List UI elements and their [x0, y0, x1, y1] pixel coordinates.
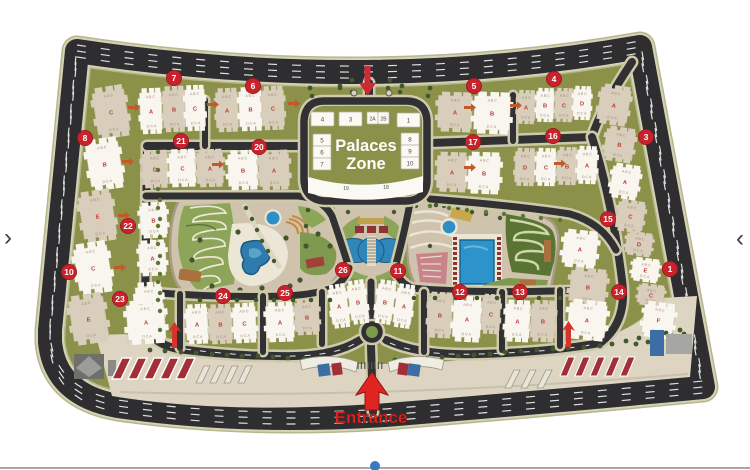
svg-text:22: 22 [123, 221, 133, 231]
svg-text:B: B [248, 107, 252, 113]
svg-text:D C A: D C A [540, 113, 550, 117]
svg-text:A B C: A B C [513, 306, 523, 310]
svg-text:B: B [490, 111, 494, 117]
svg-text:D C A: D C A [246, 121, 256, 125]
svg-text:A B C: A B C [177, 155, 187, 159]
svg-text:A B C: A B C [169, 93, 179, 97]
svg-text:D C A: D C A [149, 229, 159, 234]
svg-text:A B C: A B C [488, 99, 498, 103]
svg-text:D C A: D C A [223, 122, 233, 126]
svg-text:1: 1 [407, 118, 411, 125]
svg-text:B: B [241, 168, 245, 174]
svg-text:14: 14 [614, 287, 624, 297]
svg-text:A B C: A B C [451, 98, 461, 102]
svg-text:B: B [482, 171, 486, 177]
svg-text:A B C: A B C [302, 305, 312, 309]
svg-text:D C A: D C A [447, 183, 457, 187]
svg-text:D C A: D C A [479, 185, 489, 189]
svg-text:D C A: D C A [276, 333, 286, 337]
svg-text:A B C: A B C [238, 156, 248, 160]
svg-text:8: 8 [408, 137, 412, 144]
svg-text:A B C: A B C [192, 310, 202, 314]
svg-text:15: 15 [603, 214, 613, 224]
svg-text:4: 4 [321, 117, 325, 124]
svg-text:A B C: A B C [140, 307, 150, 312]
svg-text:A B C: A B C [542, 154, 552, 158]
svg-text:1: 1 [668, 264, 673, 274]
svg-text:A B C: A B C [487, 300, 497, 304]
svg-text:D C A: D C A [461, 332, 471, 337]
svg-text:A B C: A B C [150, 156, 160, 160]
svg-text:D C A: D C A [521, 115, 531, 119]
svg-text:D C A: D C A [520, 177, 530, 181]
svg-text:D C A: D C A [434, 328, 444, 333]
svg-text:13: 13 [515, 287, 525, 297]
svg-text:D C A: D C A [487, 125, 497, 129]
svg-text:Entrance: Entrance [335, 408, 408, 427]
svg-text:8: 8 [83, 133, 88, 143]
svg-text:D C A: D C A [450, 123, 460, 127]
svg-text:D C A: D C A [193, 335, 203, 340]
svg-text:A B C: A B C [563, 153, 573, 157]
svg-text:D: D [580, 101, 584, 107]
svg-text:12: 12 [455, 287, 465, 297]
svg-text:16: 16 [548, 131, 558, 141]
svg-text:D C A: D C A [206, 178, 216, 182]
svg-text:D C A: D C A [142, 334, 152, 339]
svg-text:A B C: A B C [215, 310, 225, 314]
svg-text:A B C: A B C [578, 92, 588, 96]
svg-text:D C A: D C A [541, 177, 551, 181]
svg-text:3: 3 [349, 117, 353, 124]
svg-text:D C A: D C A [240, 334, 250, 339]
svg-text:A B C: A B C [521, 154, 531, 158]
svg-text:B: B [541, 319, 545, 325]
svg-text:A B C: A B C [448, 158, 458, 162]
svg-text:D C A: D C A [151, 179, 161, 183]
svg-text:10: 10 [407, 161, 414, 168]
svg-text:B: B [356, 300, 361, 307]
svg-text:6: 6 [320, 150, 324, 157]
svg-text:18: 18 [383, 185, 389, 191]
svg-text:D C A: D C A [147, 124, 157, 128]
svg-text:D C A: D C A [512, 333, 522, 338]
svg-text:B: B [172, 107, 176, 113]
svg-text:D C A: D C A [559, 113, 569, 117]
svg-text:A B C: A B C [436, 299, 446, 303]
svg-text:D C A: D C A [303, 326, 313, 330]
svg-text:B: B [543, 103, 547, 109]
svg-text:A B C: A B C [541, 94, 551, 98]
svg-text:A B C: A B C [239, 309, 249, 313]
svg-text:A B C: A B C [245, 94, 255, 98]
svg-text:B: B [438, 313, 442, 319]
svg-text:D C A: D C A [269, 120, 279, 124]
svg-text:B: B [382, 300, 387, 307]
svg-text:11: 11 [394, 266, 403, 276]
svg-text:7: 7 [320, 162, 324, 169]
svg-text:A B C: A B C [190, 92, 200, 96]
svg-text:›: › [4, 224, 12, 251]
svg-text:D C A: D C A [216, 335, 226, 340]
svg-text:D C A: D C A [170, 122, 180, 126]
svg-text:D C A: D C A [239, 181, 249, 185]
svg-text:D: D [523, 165, 527, 171]
svg-text:7: 7 [172, 73, 177, 83]
svg-text:10: 10 [64, 267, 74, 277]
svg-text:4: 4 [552, 74, 557, 84]
svg-text:23: 23 [115, 294, 125, 304]
svg-text:D C A: D C A [270, 181, 280, 185]
svg-text:B: B [218, 322, 222, 328]
svg-text:D C A: D C A [148, 267, 158, 272]
svg-text:D C A: D C A [537, 333, 547, 338]
svg-text:D C A: D C A [178, 178, 188, 182]
svg-text:2B: 2B [380, 117, 387, 123]
svg-text:Palaces: Palaces [335, 137, 396, 155]
svg-text:A B C: A B C [560, 94, 570, 98]
svg-text:A B C: A B C [268, 93, 278, 97]
svg-text:D C A: D C A [486, 325, 496, 330]
svg-text:‹: ‹ [736, 225, 744, 252]
svg-text:26: 26 [338, 265, 348, 275]
svg-text:B: B [565, 164, 569, 170]
svg-text:24: 24 [218, 291, 228, 301]
svg-text:2A: 2A [369, 117, 376, 123]
svg-text:A B C: A B C [522, 96, 532, 100]
svg-text:A B C: A B C [539, 306, 549, 310]
svg-text:B: B [305, 315, 309, 321]
svg-text:Zone: Zone [346, 155, 385, 173]
svg-text:A B C: A B C [269, 156, 279, 160]
svg-text:3: 3 [644, 132, 649, 142]
svg-text:5: 5 [472, 81, 477, 91]
svg-text:A B C: A B C [147, 246, 157, 250]
svg-text:A B C: A B C [463, 303, 473, 307]
svg-text:17: 17 [468, 137, 478, 147]
svg-text:19: 19 [343, 186, 349, 192]
svg-text:25: 25 [280, 288, 290, 298]
svg-text:D C A: D C A [191, 121, 201, 125]
svg-text:A B C: A B C [480, 159, 490, 163]
svg-text:A B C: A B C [144, 289, 154, 293]
svg-text:A B C: A B C [146, 95, 156, 99]
svg-text:B: B [585, 285, 590, 291]
svg-text:A B C: A B C [205, 155, 215, 159]
svg-text:B: B [151, 218, 155, 224]
svg-text:D C A: D C A [562, 176, 572, 180]
svg-text:D C A: D C A [582, 175, 592, 179]
svg-text:20: 20 [254, 142, 264, 152]
svg-text:6: 6 [251, 81, 256, 91]
svg-text:A B C: A B C [275, 308, 285, 312]
svg-text:21: 21 [176, 136, 186, 146]
svg-text:A B C: A B C [583, 152, 593, 156]
svg-text:A B C: A B C [222, 95, 232, 99]
svg-text:5: 5 [320, 138, 324, 145]
svg-text:D C A: D C A [577, 111, 587, 115]
svg-text:9: 9 [408, 149, 412, 156]
